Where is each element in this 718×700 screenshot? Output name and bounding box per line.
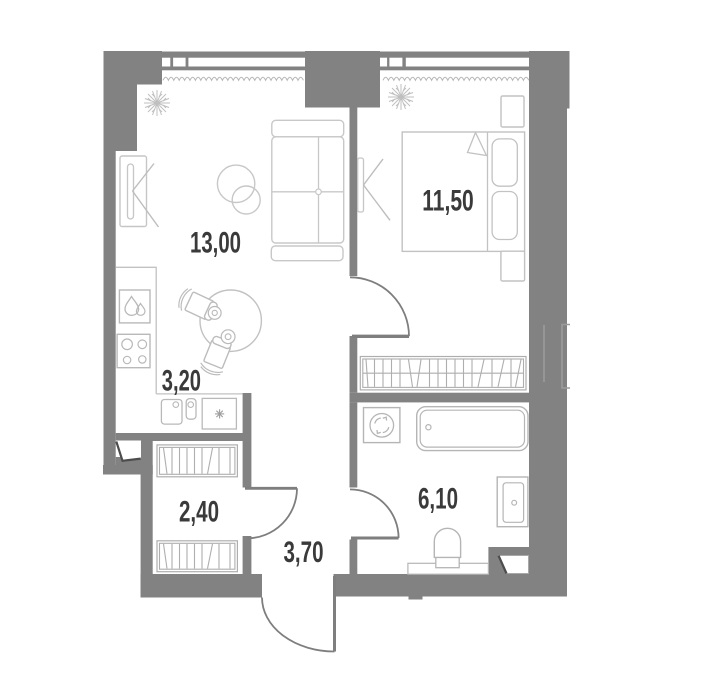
svg-text:11,50: 11,50	[422, 185, 474, 218]
svg-text:3,70: 3,70	[284, 536, 324, 569]
svg-text:6,10: 6,10	[418, 483, 458, 516]
svg-text:3,20: 3,20	[162, 364, 201, 397]
svg-text:2,40: 2,40	[179, 496, 219, 529]
svg-text:13,00: 13,00	[190, 227, 241, 260]
